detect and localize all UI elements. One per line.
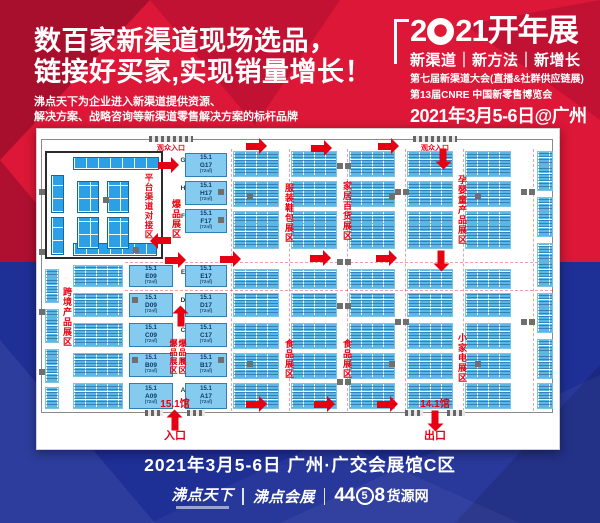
zone-label: 小家电展区 [454, 333, 466, 383]
pillar-marker [389, 193, 395, 199]
room-booth-strip [51, 175, 64, 213]
event-title-pre: 2 [410, 14, 426, 48]
booth-block [291, 181, 337, 207]
logo-4458: 44 5 8 货源网 [334, 485, 428, 507]
booth-block [407, 323, 453, 349]
room-booth-strip [73, 157, 159, 170]
large-booth: 15.1G17(72㎡) [185, 153, 227, 177]
zone-label: 跨境产品展区 [59, 287, 71, 347]
booth-block [537, 339, 553, 379]
booth-block [407, 211, 453, 249]
pillar-marker [247, 193, 253, 199]
event-line1: 第七届新渠道大会(直播&社群供应链展) [410, 74, 596, 86]
booth-block [45, 309, 59, 343]
logo-separator [324, 488, 326, 505]
booth-block [233, 181, 279, 207]
pillar-marker [403, 319, 409, 325]
room-booth-cluster [107, 217, 129, 249]
pillar-marker [345, 163, 351, 169]
event-title: 221开年展 [410, 14, 596, 48]
pillar-marker [132, 357, 138, 363]
booth-block [465, 269, 511, 289]
pillar-marker [39, 189, 45, 195]
booth-block [291, 323, 337, 349]
headline-sub1: 沸点天下为企业进入新渠道提供资源、 [34, 95, 394, 110]
booth-block [291, 211, 337, 249]
pillar-marker [521, 319, 527, 325]
booth-block [537, 151, 553, 191]
booth-block [465, 293, 511, 317]
circled-5-icon: 5 [356, 487, 374, 505]
direction-arrow-icon [310, 255, 323, 262]
pillar-marker [345, 303, 351, 309]
booth-block [233, 323, 279, 349]
direction-arrow-icon [438, 251, 445, 264]
direction-arrow-icon [440, 149, 447, 162]
booth-block [45, 387, 59, 409]
event-line2: 第13届CNRE 中国新零售博览会 [410, 90, 596, 102]
booth-block [465, 353, 511, 379]
zone-label: 孕婴童产品展区 [454, 175, 466, 245]
pillar-marker [337, 303, 343, 309]
pillar-marker [218, 357, 224, 363]
large-booth: 15.1E17(72㎡) [185, 265, 227, 287]
pillar-marker [39, 369, 45, 375]
aisle-guide [231, 149, 232, 411]
booth-block [465, 383, 511, 409]
booth-block [349, 293, 395, 317]
row-letter: H [178, 185, 188, 193]
gate-arrow-icon [432, 411, 439, 424]
direction-arrow-icon [376, 255, 389, 262]
room-booth-cluster [77, 217, 99, 249]
row-letter: E [178, 269, 188, 277]
entrance-hatch [187, 410, 205, 416]
logo-tagline-bar [176, 506, 229, 509]
exhibition-poster: 数百家新渠道现场选品， 链接好买家,实现销量增长！ 沸点天下为企业进入新渠道提供… [0, 0, 600, 523]
booth-block [465, 323, 511, 349]
direction-arrow-icon [165, 257, 178, 264]
room-booth-strip [51, 217, 64, 255]
booth-block [407, 181, 453, 207]
pillar-marker [133, 247, 139, 253]
large-booth: 15.1D17(72㎡) [185, 293, 227, 317]
direction-arrow-icon [158, 162, 171, 169]
logo-feidian-huizhan: 沸点会展 [253, 486, 315, 507]
floor-plan-map: 平台渠道对接区15.1G17(72㎡)15.1H17(72㎡)15.1F17(7… [36, 128, 560, 450]
pillar-marker [475, 193, 481, 199]
row-letter: A [178, 387, 188, 395]
row-letter: D [178, 297, 188, 305]
entrance-hatch [413, 136, 457, 142]
logo-row: 沸点天下 沸点会展 44 5 8 货源网 [0, 484, 600, 509]
booth-block [73, 323, 123, 347]
entrance-hatch [145, 410, 163, 416]
logo-feidian-tianxia: 沸点天下 [171, 484, 233, 509]
booth-block [233, 211, 279, 249]
booth-block [291, 353, 337, 379]
booth-block [291, 293, 337, 317]
booth-block [407, 353, 453, 379]
booth-block [45, 349, 59, 383]
booth-block [465, 151, 511, 177]
pillar-marker [39, 309, 45, 315]
headline-block: 数百家新渠道现场选品， 链接好买家,实现销量增长！ 沸点天下为企业进入新渠道提供… [34, 26, 394, 125]
pillar-marker [521, 189, 527, 195]
pillar-marker [395, 189, 401, 195]
headline-line1: 数百家新渠道现场选品， [34, 26, 394, 57]
event-date-location: 2021年3月5-6日@广州 [410, 106, 596, 127]
row-letter: C [178, 327, 188, 335]
booth-block [349, 211, 395, 249]
booth-block [537, 293, 553, 333]
row-letter: G [178, 157, 188, 165]
direction-arrow-icon [378, 143, 391, 150]
headline-line2: 链接好买家,实现销量增长！ [34, 57, 394, 88]
logo-separator [242, 488, 244, 505]
booth-block [407, 293, 453, 317]
booth-block [537, 197, 553, 237]
pillar-marker [132, 297, 138, 303]
zone-label: 食品展区 [281, 339, 293, 379]
booth-block [73, 293, 123, 317]
booth-block [537, 383, 553, 409]
zone-label: 爆品展区 [168, 199, 180, 239]
event-title-post: 21开年展 [455, 14, 577, 48]
large-booth: 15.1E09(72㎡) [129, 265, 173, 287]
pillar-marker [389, 361, 395, 367]
booth-block [465, 211, 511, 249]
booth-block [233, 269, 279, 289]
booth-block [349, 269, 395, 289]
zone-label: 服装鞋包展区 [281, 183, 293, 243]
direction-arrow-icon [246, 143, 259, 150]
booth-block [73, 265, 123, 287]
pillar-marker [39, 249, 45, 255]
direction-arrow-icon [377, 401, 390, 408]
pillar-marker [345, 259, 351, 265]
entrance-hatch [149, 136, 193, 142]
room-booth-cluster [77, 181, 99, 213]
venue-line: 2021年3月5-6日 广州·广交会展馆C区 [0, 452, 600, 477]
booth-block [73, 383, 123, 409]
pillar-marker [218, 217, 224, 223]
pillar-marker [529, 189, 535, 195]
booth-block [349, 151, 395, 177]
direction-arrow-icon [311, 145, 324, 152]
entrance-hatch [447, 410, 465, 416]
pillar-marker [529, 319, 535, 325]
booth-block [233, 151, 279, 177]
booth-block [73, 353, 123, 377]
direction-arrow-icon [246, 401, 259, 408]
booth-block [45, 269, 59, 303]
booth-block [349, 323, 395, 349]
visitor-entrance-label: 观众入口 [149, 143, 193, 151]
room-booth-cluster [107, 181, 129, 213]
platform-zone-room: 平台渠道对接区 [45, 151, 163, 259]
hall-number-label: 14.1馆 [405, 395, 465, 407]
pillar-marker [103, 197, 109, 203]
gate-arrow-icon [172, 418, 179, 431]
booth-block [465, 181, 511, 207]
event-tagline: 新渠道｜新方法｜新增长 [410, 52, 596, 70]
pillar-marker [403, 189, 409, 195]
footer-block: 2021年3月5-6日 广州·广交会展馆C区 沸点天下 沸点会展 44 5 8 … [0, 452, 600, 509]
ox-emblem-icon [427, 18, 454, 45]
pillar-marker [218, 189, 224, 195]
hall-number-label: 15.1馆 [145, 395, 205, 407]
pillar-marker [247, 361, 253, 367]
pillar-marker [337, 259, 343, 265]
pillar-marker [337, 379, 343, 385]
zone-label: 食品展区 [339, 339, 351, 379]
pillar-marker [475, 361, 481, 367]
visitor-entrance-label: 观众入口 [413, 143, 457, 151]
direction-arrow-icon [314, 401, 327, 408]
pillar-marker [395, 319, 401, 325]
booth-block [233, 353, 279, 379]
large-booth: 15.1C17(72㎡) [185, 323, 227, 347]
aisle-guide [125, 290, 553, 291]
corner-bracket-icon [394, 19, 409, 64]
pillar-marker [337, 163, 343, 169]
entrance-hatch [405, 410, 423, 416]
booth-block [233, 293, 279, 317]
pillar-marker [345, 379, 351, 385]
booth-block [407, 269, 453, 289]
direction-arrow-icon [178, 314, 185, 327]
headline-sub2: 解决方案、战略咨询等新渠道零售解决方案的标杆品牌 [34, 110, 394, 125]
booth-block [537, 243, 553, 287]
direction-arrow-icon [220, 256, 233, 263]
zone-label: 爆品展区 [174, 339, 186, 375]
booth-block [291, 269, 337, 289]
zone-label: 家居百货展区 [339, 181, 351, 241]
direction-arrow-icon [158, 237, 171, 244]
event-info-block: 221开年展 新渠道｜新方法｜新增长 第七届新渠道大会(直播&社群供应链展) 第… [410, 14, 596, 127]
